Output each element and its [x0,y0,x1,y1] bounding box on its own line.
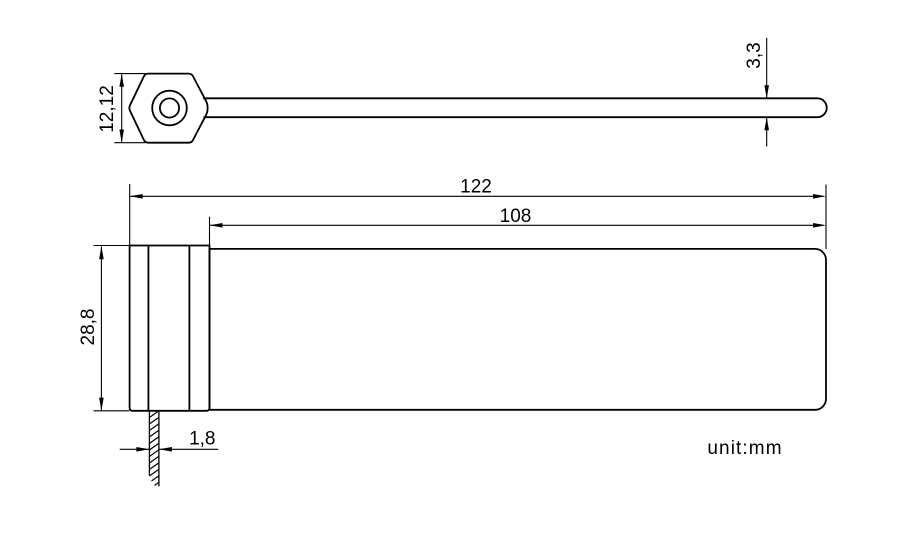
svg-text:1,8: 1,8 [189,429,215,450]
svg-text:122: 122 [460,176,492,197]
svg-text:108: 108 [500,206,532,227]
svg-text:28,8: 28,8 [78,309,99,346]
svg-text:unit:mm: unit:mm [707,438,782,459]
svg-text:12,12: 12,12 [97,85,118,133]
svg-text:3,3: 3,3 [744,42,765,68]
